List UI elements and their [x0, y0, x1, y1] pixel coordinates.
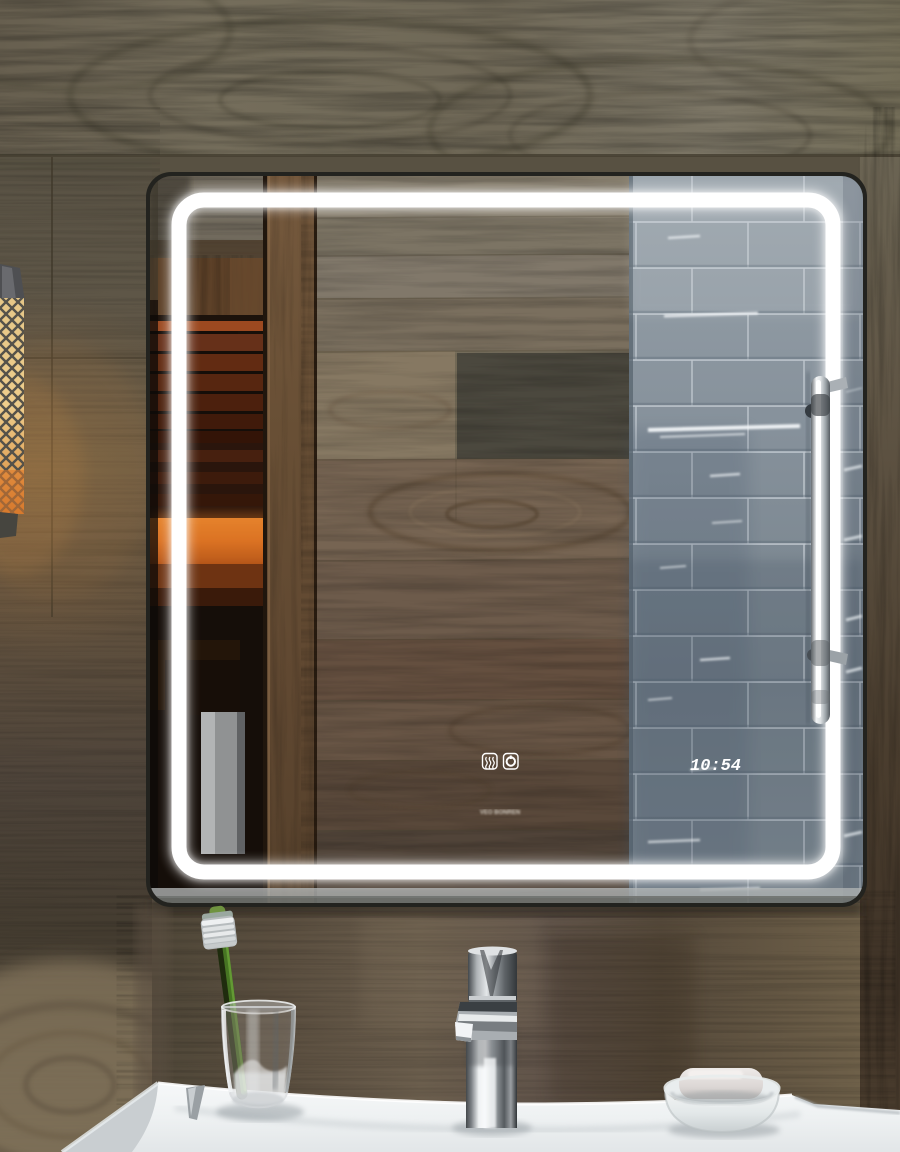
svg-text:VEO BONREN: VEO BONREN	[480, 810, 520, 816]
svg-text:10:54: 10:54	[690, 757, 741, 776]
